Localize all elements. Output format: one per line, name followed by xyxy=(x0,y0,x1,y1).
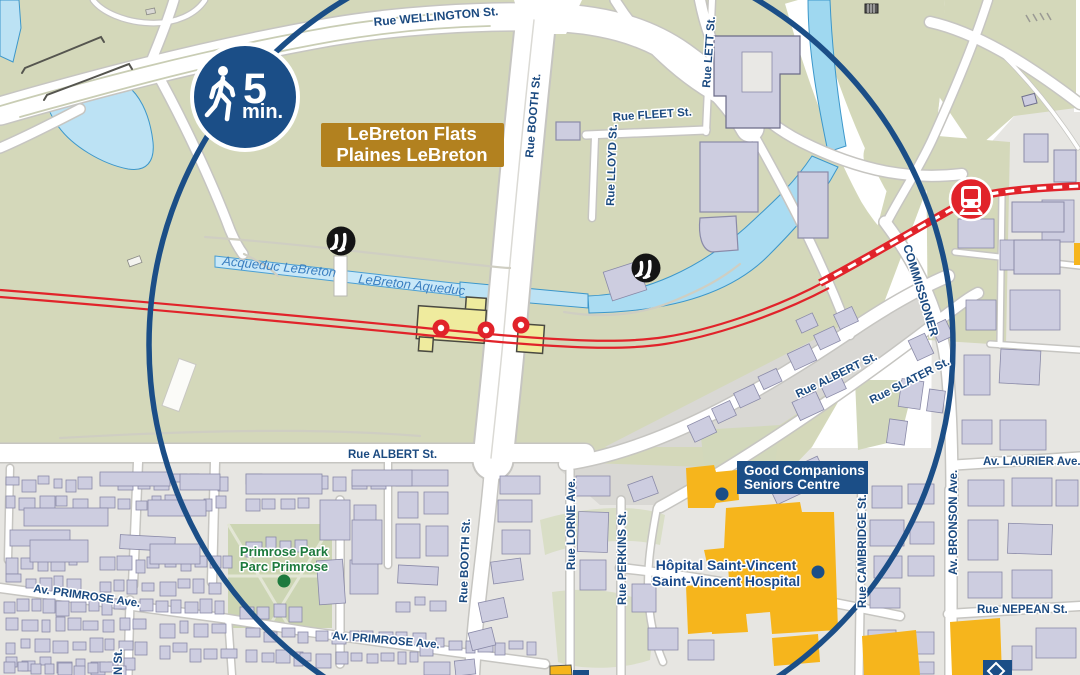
svg-text:Rue PERKINS St.: Rue PERKINS St. xyxy=(617,511,629,605)
svg-text:Rue ALBERT St.: Rue ALBERT St. xyxy=(348,449,437,461)
svg-text:Seniors Centre: Seniors Centre xyxy=(744,477,841,492)
svg-text:Saint-Vincent Hospital: Saint-Vincent Hospital xyxy=(652,573,800,589)
svg-text:Hôpital Saint-Vincent: Hôpital Saint-Vincent xyxy=(656,557,797,573)
svg-text:Rue NEPEAN St.: Rue NEPEAN St. xyxy=(977,604,1068,616)
svg-text:Primrose Park: Primrose Park xyxy=(240,544,329,559)
svg-text:Av. LAURIER Ave.: Av. LAURIER Ave. xyxy=(983,456,1080,468)
svg-text:min.: min. xyxy=(242,101,283,123)
svg-text:Good Companions: Good Companions xyxy=(744,463,865,478)
svg-text:Rue LORNE Ave.: Rue LORNE Ave. xyxy=(566,478,578,570)
svg-text:Plaines LeBreton: Plaines LeBreton xyxy=(336,144,487,165)
svg-text:Av. BRONSON Ave.: Av. BRONSON Ave. xyxy=(948,470,960,575)
svg-text:Rue CAMBRIDGE St. N: Rue CAMBRIDGE St. N xyxy=(857,483,869,608)
svg-text:Parc Primrose: Parc Primrose xyxy=(240,559,328,574)
svg-text:N St.: N St. xyxy=(113,649,125,675)
svg-text:LeBreton Flats: LeBreton Flats xyxy=(347,123,477,144)
